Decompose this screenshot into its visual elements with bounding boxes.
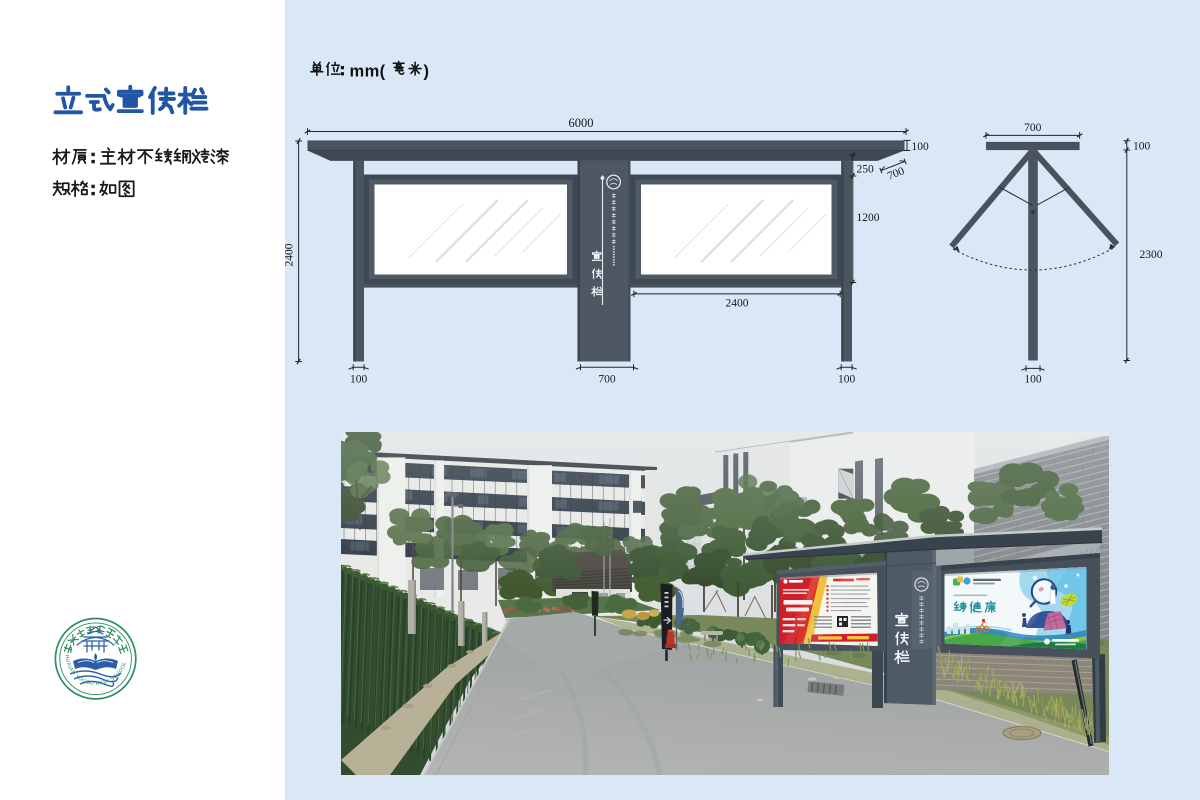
svg-text:): ) bbox=[424, 62, 430, 80]
svg-text:6000: 6000 bbox=[569, 116, 594, 130]
svg-text:250: 250 bbox=[857, 163, 875, 175]
svg-text:100: 100 bbox=[1024, 374, 1042, 386]
svg-text:100: 100 bbox=[838, 374, 856, 386]
svg-text:100: 100 bbox=[912, 141, 930, 153]
svg-text:100: 100 bbox=[350, 374, 368, 386]
svg-text:2400: 2400 bbox=[284, 243, 296, 266]
svg-text:1200: 1200 bbox=[857, 212, 880, 224]
svg-text:2300: 2300 bbox=[1140, 249, 1163, 261]
svg-text:mm(: mm( bbox=[350, 62, 386, 80]
svg-text:700: 700 bbox=[1024, 122, 1042, 134]
svg-text:100: 100 bbox=[1133, 141, 1151, 153]
svg-text:700: 700 bbox=[598, 374, 616, 386]
svg-text:2400: 2400 bbox=[726, 298, 749, 310]
